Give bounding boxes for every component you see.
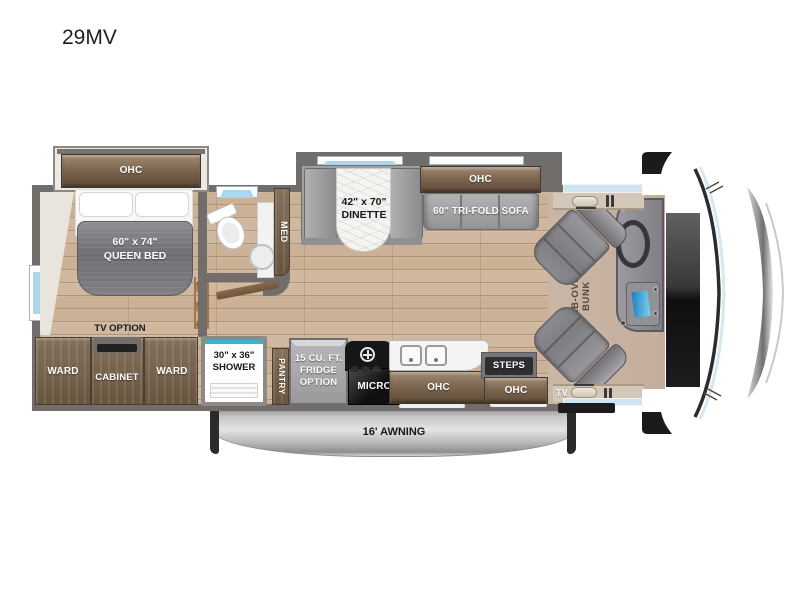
fridge-line2: FRIDGE: [289, 365, 348, 377]
sink-right: [425, 345, 447, 366]
cabinet-label: CABINET: [92, 372, 142, 383]
entry-ohc-label: OHC: [484, 377, 548, 404]
ward-right-label: WARD: [146, 366, 198, 377]
med-cabinet-label: MED: [275, 202, 289, 262]
bath-sink-basin: [249, 244, 275, 270]
fridge-top-edge: [291, 340, 346, 346]
cab-door-top-vent-2: [611, 195, 614, 207]
queen-bed-dims: 60" x 74": [77, 236, 193, 250]
floorplan-title: 29MV: [62, 26, 117, 50]
shower-name: SHOWER: [205, 362, 263, 374]
entry-door-trim: [574, 384, 594, 386]
kitchen-ohc-label: OHC: [389, 371, 488, 404]
steps-label: STEPS: [485, 357, 533, 375]
dinette-slideout-window-2: [429, 156, 524, 165]
fridge-line3: OPTION: [289, 377, 348, 389]
hood: [666, 213, 700, 387]
shower-dims: 30" x 36": [205, 350, 263, 362]
wardrobe-divider-2: [143, 337, 145, 405]
bath-window-glass: [220, 190, 254, 198]
pantry-label: PANTRY: [274, 347, 287, 406]
wall-bottom: [32, 404, 563, 411]
queen-bed-label: 60" x 74" QUEEN BED: [77, 236, 193, 263]
sink-left-drain: [409, 358, 413, 362]
dinette-label: 42" x 70" DINETTE: [326, 196, 402, 222]
awning-label: 16' AWNING: [214, 426, 574, 440]
shower-accent-strip: [205, 340, 263, 344]
counter-sill-1: [399, 404, 465, 408]
sink-left: [400, 345, 422, 366]
bedroom-window-glass: [33, 272, 40, 314]
cab-nose: [632, 143, 788, 443]
burner-icon: [360, 347, 375, 362]
cab-door-top-window: [563, 184, 643, 193]
cab-door-top-trim: [576, 207, 596, 209]
cab-door-top-handle: [572, 196, 598, 207]
fridge-label: 15 CU. FT. FRIDGE OPTION: [289, 353, 348, 389]
sink-right-drain: [434, 358, 438, 362]
floorplan-canvas: 29MV 16' AWNING OHC 60" x 74" QUEEN BED …: [0, 0, 800, 600]
entry-tv-label: TV: [554, 388, 570, 398]
ward-left-label: WARD: [37, 366, 89, 377]
queen-bed-name: QUEEN BED: [77, 250, 193, 264]
sofa-ohc-label: OHC: [420, 166, 541, 193]
dinette-dims: 42" x 70": [326, 196, 402, 209]
bedroom-ohc-label: OHC: [61, 154, 201, 188]
fridge-line1: 15 CU. FT.: [289, 353, 348, 365]
bed-pillow-left: [79, 192, 133, 217]
shower-ledge: [210, 383, 258, 398]
entry-step: [558, 403, 615, 413]
dinette-name: DINETTE: [326, 209, 402, 222]
bed-pillow-right: [135, 192, 189, 217]
cab-door-top: [553, 193, 644, 210]
shower-label: 30" x 36" SHOWER: [205, 350, 263, 374]
tv-option-label: TV OPTION: [75, 323, 165, 335]
tv-bar: [97, 344, 137, 352]
wardrobe-divider-1: [90, 337, 92, 405]
sofa-label: 60" TRI-FOLD SOFA: [423, 206, 539, 217]
dash-vent-2: [620, 320, 626, 326]
entry-door-handle: [571, 387, 597, 398]
cab-door-top-vent-1: [606, 195, 609, 207]
